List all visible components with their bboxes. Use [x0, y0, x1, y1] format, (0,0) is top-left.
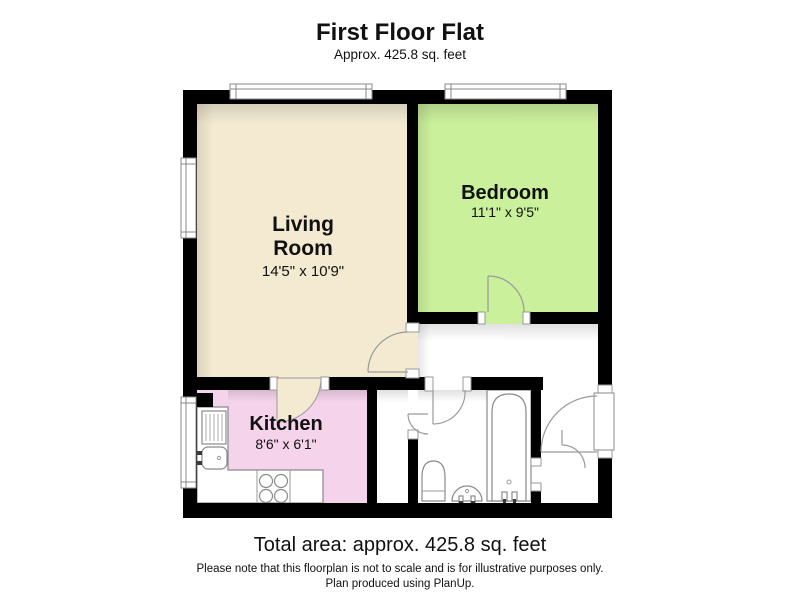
bedroom-dims: 11'1" x 9'5" — [471, 204, 539, 220]
floorplan-page: First Floor Flat Approx. 425.8 sq. feet … — [0, 0, 800, 600]
credit-text: Plan produced using PlanUp. — [326, 578, 475, 590]
bathtub-rim — [492, 394, 526, 501]
bedroom-label: Bedroom — [461, 182, 549, 204]
living-room-label-2: Room — [273, 237, 333, 260]
living-door-opening — [407, 331, 418, 370]
window-living-top — [230, 84, 372, 99]
page-subtitle: Approx. 425.8 sq. feet — [334, 47, 466, 62]
kitchen-sink — [202, 447, 227, 469]
floorplan-canvas: First Floor Flat Approx. 425.8 sq. feet … — [0, 0, 800, 600]
page-title: First Floor Flat — [316, 19, 484, 46]
bath-tap — [502, 492, 507, 500]
kitchen-label: Kitchen — [249, 413, 322, 435]
kitchen-dims: 8'6" x 6'1" — [255, 436, 316, 452]
entrance-door-panel — [594, 393, 614, 450]
disclaimer-text: Please note that this floorplan is not t… — [197, 563, 604, 575]
living-room-dims: 14'5" x 10'9" — [262, 263, 344, 280]
toilet — [422, 461, 445, 501]
total-area-text: Total area: approx. 425.8 sq. feet — [254, 534, 547, 556]
window-bedroom-top — [445, 84, 566, 99]
living-room-label: Living — [272, 213, 334, 236]
window-living-left — [181, 158, 196, 238]
window-kitchen-left — [181, 397, 196, 488]
bath-tap — [512, 492, 517, 500]
bedroom-door-opening — [485, 312, 523, 324]
